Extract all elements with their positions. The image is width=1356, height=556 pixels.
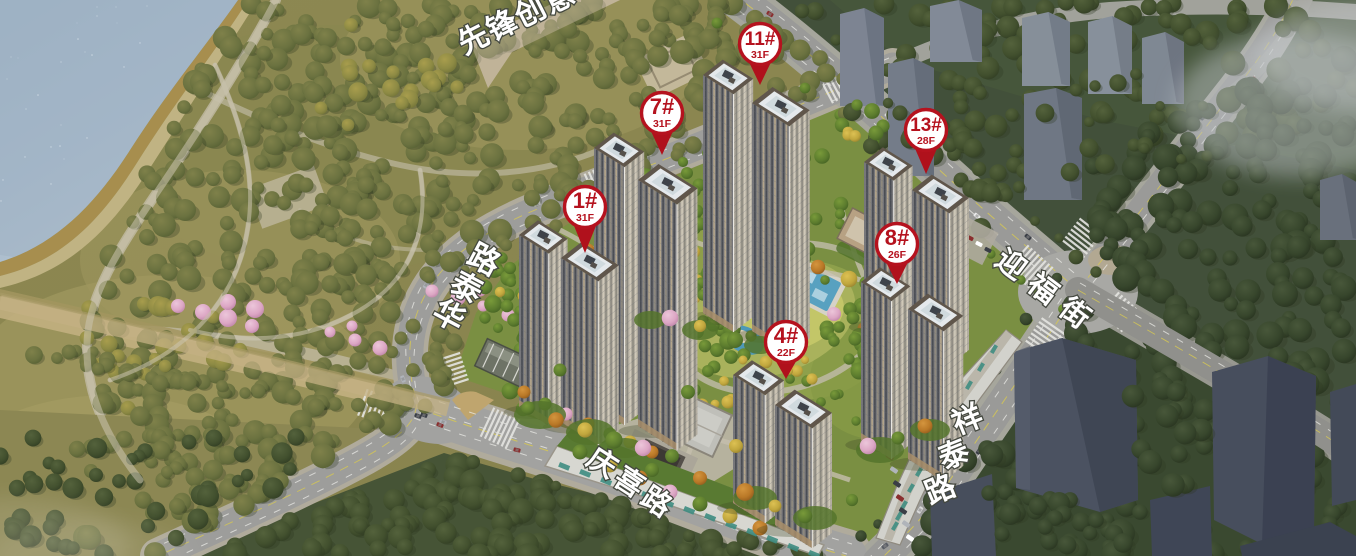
svg-text:26F: 26F [888,249,907,261]
svg-text:22F: 22F [777,347,796,359]
svg-text:31F: 31F [751,49,770,61]
svg-text:31F: 31F [653,118,672,130]
svg-text:8#: 8# [885,225,909,250]
svg-text:1#: 1# [573,188,597,213]
svg-text:28F: 28F [917,135,936,147]
svg-text:7#: 7# [650,94,674,119]
svg-text:13#: 13# [910,115,942,136]
svg-text:31F: 31F [576,212,595,224]
svg-text:11#: 11# [745,29,776,50]
svg-text:4#: 4# [774,323,798,348]
